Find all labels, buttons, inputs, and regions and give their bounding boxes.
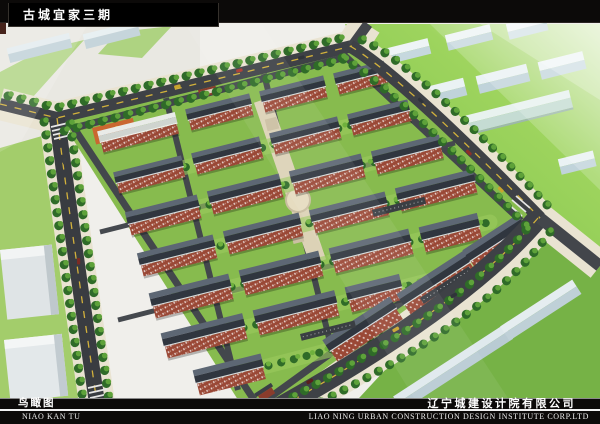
birdseye-rendering [0,0,600,424]
edge-sliver [0,23,6,34]
footer-band: 鸟瞰图 辽宁城建设计院有限公司 NIAO KAN TU LIAO NING UR… [0,398,600,424]
car [63,158,66,165]
company-name-cn: 辽宁城建设计院有限公司 [428,399,577,409]
car [77,258,80,265]
footer-row-english: NIAO KAN TU LIAO NING URBAN CONSTRUCTION… [0,411,600,423]
car [89,348,92,355]
view-label-en: NIAO KAN TU [22,411,80,423]
company-name-en: LIAO NING URBAN CONSTRUCTION DESIGN INST… [309,411,589,423]
project-title: 古城宜家三期 [23,6,113,23]
drawing-sheet: 古城宜家三期 鸟瞰图 辽宁城建设计院有限公司 NIAO KAN TU LIAO … [0,0,600,424]
project-title-box: 古城宜家三期 [8,3,219,27]
context-block [4,334,68,402]
footer-row-chinese: 鸟瞰图 辽宁城建设计院有限公司 [0,399,600,409]
context-block [0,245,59,320]
view-label-cn: 鸟瞰图 [18,399,56,409]
